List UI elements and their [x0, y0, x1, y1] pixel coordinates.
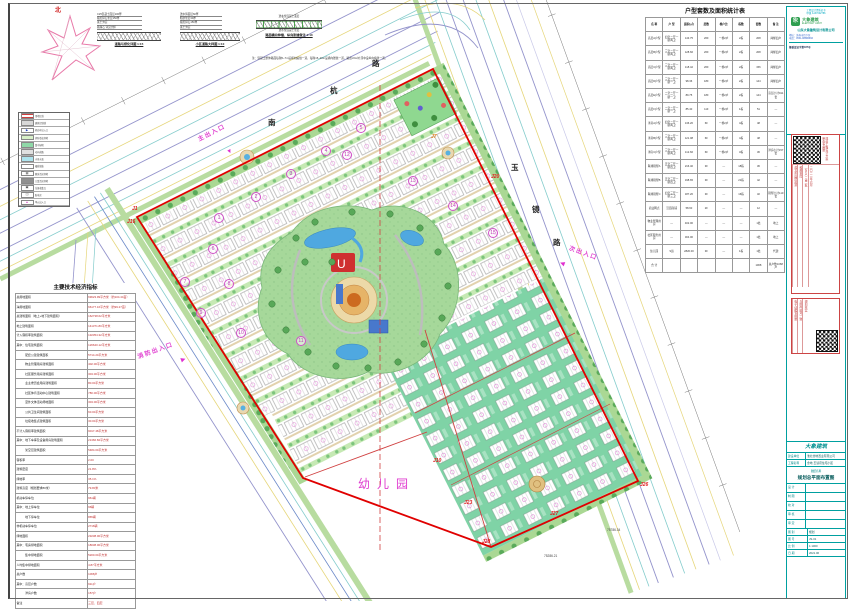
unit-cell: 总户数1068户 [767, 259, 784, 273]
unit-col-header: 面积(㎡) [680, 18, 697, 32]
field-value: 淮北金地置业有限公司 [806, 453, 836, 459]
field-value: 规划 [808, 529, 816, 535]
econ-label: 集中绿地面积 [16, 551, 88, 561]
legend-label: 宅间道路 [35, 150, 44, 154]
unit-cell: 四室二厅一厨两卫 [663, 117, 680, 131]
unit-cell: 3F [698, 174, 715, 188]
econ-label: 建筑高度（规划要求80米） [16, 484, 88, 494]
table-row: 建筑高度（规划要求80米）79.80米 [16, 484, 136, 494]
field-label: 比 例 [787, 543, 808, 549]
econ-value: 21.8% [87, 465, 135, 475]
title-block: 工程设计资质证书甲级 A137002786 象 大象建筑 ELEPHANT AR… [786, 6, 846, 599]
legend-swatch [21, 156, 34, 162]
field-value [806, 484, 808, 492]
approval-stamp: 建设工程设计方案审查专用章 淮北市自然资源和规划局〔2021〕第二批二〇二一年六… [791, 134, 840, 294]
legend-swatch: ▶ [21, 128, 34, 134]
table-row: 社区体育活动中心建筑面积780.00平方米 [16, 388, 136, 398]
econ-label: 架空层建筑面积 [16, 446, 88, 456]
unit-cell: 42 [750, 174, 767, 188]
legend-label: 水景水面 [35, 157, 44, 161]
unit-cell: 一梯2户 [715, 60, 732, 74]
econ-value: 23238.00平方米 [87, 532, 135, 542]
econ-label: 机动车停车位 [16, 493, 88, 503]
econ-value: 21366.82平方米 [87, 436, 135, 446]
field-value [806, 493, 808, 501]
unit-cell: 高层D户型 [646, 74, 663, 88]
unit-col-header: 栋数 [732, 18, 749, 32]
legend-item: ▶机动车出入口 [19, 127, 69, 134]
unit-cell: 4栋 [732, 131, 749, 145]
unit-cell: — [767, 174, 784, 188]
drawing-name: 规划总平面布置图 [788, 475, 844, 481]
legend-item: 水景水面 [19, 156, 69, 163]
field-label: 审 定 [787, 520, 806, 528]
unit-cell: 16栋 [732, 188, 749, 202]
unit-cell: 48 [750, 131, 767, 145]
table-row: 社区服务用房建筑面积304.00平方米 [16, 369, 136, 379]
unit-cell: 三室二厅一厨两卫 [663, 145, 680, 159]
unit-cell: 洋房C户型 [646, 145, 663, 159]
unit-cell [663, 259, 680, 273]
unit-cell: — [732, 230, 749, 244]
unit-cell: 208 [750, 32, 767, 46]
unit-cell: 208 [750, 46, 767, 60]
table-row: 公共卫生间建筑面积60.00平方米 [16, 408, 136, 418]
econ-label: 容积率 [16, 455, 88, 465]
unit-cell: 高层小计911套 [767, 88, 784, 102]
unit-cell: 洋房A户型 [646, 117, 663, 131]
econ-value: 141371.80平方米 [87, 322, 135, 332]
legend-item: 宅间道路 [19, 149, 69, 156]
table-row: 合 计1068总户数1068户 [646, 259, 785, 273]
cert-line: 甲级 A137002786 [789, 12, 843, 15]
legend-item: ◫配电房 [19, 192, 69, 199]
hatch-strip [97, 32, 161, 41]
econ-value: 4.87平方米 [87, 560, 135, 570]
field-value: JS-01 [808, 536, 817, 542]
table-row: 联排别墅B五室三厅一厨四卫198.653F—21栋42— [646, 174, 785, 188]
table-row: 总户数1068户 [16, 570, 136, 580]
econ-value: 865辆 [87, 513, 135, 523]
unit-statistics-table: 户型套数及面积统计表 名 称户 型面积(㎡)层数梯户比栋数套数备 注高层A户型四… [645, 6, 785, 273]
unit-cell [680, 259, 697, 273]
qr-code [793, 136, 821, 164]
econ-value: 5484.00平方米 [87, 446, 135, 456]
legend-swatch [21, 113, 34, 119]
legend-label: 机动车出入口 [35, 128, 48, 132]
table-row: 不计入容积率建筑面积9017.48平方米 [16, 427, 136, 437]
unit-cell: 143.75 [680, 32, 697, 46]
table-row: 洋房A户型四室二厅一厨两卫136.206F一梯2户4栋48— [646, 117, 785, 131]
drawing-meta-row: 日 期2021.06 [787, 550, 845, 557]
unit-cell: 85.40 [680, 103, 697, 117]
econ-label: 其中：地上停车位 [16, 503, 88, 513]
unit-cell: 4栋 [732, 117, 749, 131]
unit-cell: — [715, 188, 732, 202]
unit-cell: 11F [698, 103, 715, 117]
unit-cell: 216.40 [680, 159, 697, 173]
unit-cell: 代建 [767, 245, 784, 259]
signature-row: 校 对 [787, 502, 845, 511]
table-row: 业主委员会用房建筑面积80.00平方米 [16, 379, 136, 389]
table-row: 洋房C户型三室二厅一厨两卫112.666F一梯2户3栋36洋房小计157套 [646, 145, 785, 159]
stamp-text: 规划核实 [802, 299, 807, 353]
field-value: 金地·玉镜府住宅小区 [806, 460, 834, 466]
table-row: 高层A户型四室二厅一厨两卫143.7526F一梯2户2栋208两梯四户 [646, 32, 785, 46]
table-row: 高层D户型三室二厅一厨一卫98.3618F一梯2户2栋144两梯四户 [646, 74, 785, 88]
detail-caption: 路面横向伸缩、纵向胀缝做法 1:10 [256, 34, 322, 38]
table-row: 其中：住宅建筑面积126640.12平方米 [16, 341, 136, 351]
econ-label: 物业管理用房建筑面积 [16, 360, 88, 370]
legend-swatch [21, 120, 34, 126]
unit-col-header: 名 称 [646, 18, 663, 32]
table-row: 备注三层、四层 [16, 599, 136, 609]
unit-cell: 89.75 [680, 88, 697, 102]
table-row: 其中：宅旁绿地面积18038.00平方米 [16, 541, 136, 551]
econ-value: 132354.32平方米 [87, 331, 135, 341]
unit-col-header: 层数 [698, 18, 715, 32]
unit-cell [698, 259, 715, 273]
field-label: 设 计 [787, 484, 806, 492]
unit-cell [715, 259, 732, 273]
unit-cell: 144 [750, 88, 767, 102]
table-row: 社区服务用房—304.00———1处地上 [646, 230, 785, 244]
econ-label: 其中：住宅建筑面积 [16, 341, 88, 351]
unit-cell: 高层B户型 [646, 46, 663, 60]
unit-col-header: 梯户比 [715, 18, 732, 32]
unit-cell: 2栋 [732, 46, 749, 60]
legend-label: 配电房 [35, 193, 42, 197]
legend-swatch: ▦ [21, 171, 34, 177]
stamp-text: 二〇二一年六月 [808, 165, 813, 287]
table-row: 建筑密度21.8% [16, 465, 136, 475]
field-value: 1:1000 [808, 543, 819, 549]
unit-cell: 32 [750, 188, 767, 202]
unit-cell: — [715, 216, 732, 230]
unit-cell: 高层C户型 [646, 60, 663, 74]
legend-label: 用地红线 [35, 114, 44, 118]
field-value [806, 502, 808, 510]
contact-line: 电话：0531-88886666 [789, 37, 843, 40]
signature-row: 设 计 [787, 484, 845, 493]
unit-cell: 高层A户型 [646, 32, 663, 46]
unit-cell: 121.08 [680, 131, 697, 145]
unit-cell: 三室二厅一厨两卫 [663, 46, 680, 60]
table-row: 垃圾收集点建筑面积30.00平方米 [16, 417, 136, 427]
unit-cell: — [715, 202, 732, 216]
unit-cell: 联排别墅A [646, 159, 663, 173]
unit-cell: 五室三厅一厨四卫 [663, 174, 680, 188]
signature-row: 审 核 [787, 511, 845, 520]
table-row: 机动车停车位961辆 [16, 493, 136, 503]
table-row: 洋房B户型三室二厅一厨两卫121.086F一梯2户4栋48— [646, 131, 785, 145]
svg-text:U: U [337, 257, 346, 271]
unit-cell: — [732, 202, 749, 216]
unit-cell: 两梯四户 [767, 74, 784, 88]
unit-cell: 26F [698, 60, 715, 74]
legend-swatch [21, 178, 34, 184]
econ-label: 垃圾收集点建筑面积 [16, 417, 88, 427]
unit-cell: 联排别墅B [646, 174, 663, 188]
table-row: 计入容积率建筑面积132354.32平方米 [16, 331, 136, 341]
legend: 用地红线建筑控制线▶机动车出入口消防登高场地集中绿地宅间道路水景水面硬质铺装▦健… [18, 112, 70, 207]
table-row: 高层C户型三室二厅一厨两卫118.4226F一梯2户2栋156两梯四户 [646, 60, 785, 74]
cert-lines: 工程设计资质证书甲级 A137002786 [789, 9, 843, 15]
legend-swatch [21, 135, 34, 141]
econ-label: 业主委员会用房建筑面积 [16, 379, 88, 389]
unit-cell: 一梯2户 [715, 131, 732, 145]
unit-col-header: 户 型 [663, 18, 680, 32]
unit-cell: 198.65 [680, 174, 697, 188]
legend-label: 单元出入口 [35, 200, 46, 204]
unit-cell: — [767, 202, 784, 216]
econ-value: 2.00 [87, 455, 135, 465]
company-brand: 大象建筑 ELEPHANT ARCH [802, 18, 822, 26]
econ-value: 66177.16平方米（约99.27亩） [87, 303, 135, 313]
unit-cell: 高层E户型 [646, 88, 663, 102]
unit-cell: — [715, 245, 732, 259]
unit-cell: 2820.00 [680, 245, 697, 259]
hatch-strip-green [256, 20, 322, 29]
company-name: 山东大象建筑设计有限公司 [789, 27, 843, 32]
econ-label: 建筑密度 [16, 465, 88, 475]
leader-label: 透水性混凝土垫层 [256, 29, 322, 32]
unit-cell: 402.00 [680, 216, 697, 230]
drawing-name-cell: 图纸名称 规划总平面布置图 [787, 467, 845, 484]
econ-label: 绿地面积 [16, 532, 88, 542]
project-field: 工程名称金地·玉镜府住宅小区 [787, 460, 845, 467]
unit-cell: 一梯2户 [715, 88, 732, 102]
unit-cell: 二室二厅一厨一卫 [663, 103, 680, 117]
unit-cell: 112.66 [680, 145, 697, 159]
unit-cell: — [663, 230, 680, 244]
detail-caption: 道路与绿化详图 1:15 [97, 43, 161, 47]
unit-cell: — [767, 159, 784, 173]
unit-cell: 洋房B户型 [646, 131, 663, 145]
unit-cell: — [767, 131, 784, 145]
legend-label: 健身活动场地 [35, 172, 48, 176]
legend-item: 消防登高场地 [19, 135, 69, 142]
unit-cell: 洋房小计157套 [767, 145, 784, 159]
unit-cell: — [767, 117, 784, 131]
unit-cell: 98.36 [680, 74, 697, 88]
company-contact: 地址：济南市历下区电话：0531-88886666 [789, 34, 843, 40]
unit-cell: 9班 [663, 245, 680, 259]
table-row: 绿地面积23238.00平方米 [16, 532, 136, 542]
unit-cell: 128.66 [680, 46, 697, 60]
leader-label: 路缘石 详见大样 [97, 26, 142, 30]
economic-indicators-table: 主要技术经济指标 总用地面积69623.99平方米（约104.44亩）净用地面积… [15, 283, 136, 609]
field-label: 图 号 [787, 536, 808, 542]
hatch-strip [180, 32, 240, 41]
title-block-company: 工程设计资质证书甲级 A137002786 象 大象建筑 ELEPHANT AR… [787, 7, 845, 135]
unit-cell: 四室二厅一厨两卫 [663, 32, 680, 46]
unit-cell: — [698, 216, 715, 230]
legend-swatch: ▣ [21, 185, 34, 191]
unit-cell: 地上 [767, 230, 784, 244]
unit-cell: — [732, 216, 749, 230]
unit-cell: — [715, 174, 732, 188]
unit-cell: 18F [698, 74, 715, 88]
unit-cell: 1068 [750, 259, 767, 273]
econ-label: 总户数 [16, 570, 88, 580]
table-row: 配套公建建筑面积5714.20平方米 [16, 350, 136, 360]
leader-label: 透水性混凝土面层 [256, 15, 322, 18]
unit-cell: 1处 [750, 230, 767, 244]
econ-label: 洋房户数 [16, 589, 88, 599]
econ-value: 三层、四层 [87, 599, 135, 609]
title-block-fields: 大象建筑 建设单位淮北金地置业有限公司工程名称金地·玉镜府住宅小区 图纸名称 规… [787, 441, 845, 598]
unit-cell: 一梯2户 [715, 32, 732, 46]
legend-swatch: ◫ [21, 192, 34, 198]
table-row: 容积率2.00 [16, 455, 136, 465]
road-junction-curves [385, 3, 485, 48]
table-row: 幼儿园9班2820.003F—1栋1处代建 [646, 245, 785, 259]
unit-cell: 物业管理用房 [646, 216, 663, 230]
unit-cell: 156 [750, 60, 767, 74]
unit-cell: 21栋 [732, 174, 749, 188]
econ-value: 126640.12平方米 [87, 341, 135, 351]
unit-cell: 36 [750, 145, 767, 159]
table-row: 高层E户型二室二厅一厨一卫89.7518F一梯2户2栋144高层小计911套 [646, 88, 785, 102]
table-row: 非机动车停车位2716辆 [16, 522, 136, 532]
table-row: 高层F户型二室二厅一厨一卫85.4011F一梯2户1栋51— [646, 103, 785, 117]
legend-label: 建筑控制线 [35, 121, 46, 125]
legend-swatch: ▲ [21, 200, 34, 206]
legend-label: 集中绿地 [35, 143, 44, 147]
econ-table-title: 主要技术经济指标 [15, 283, 136, 291]
unit-cell: 48 [750, 117, 767, 131]
brand-sub: ELEPHANT ARCH [802, 23, 822, 26]
econ-label: 绿地率 [16, 474, 88, 484]
unit-cell: 18栋 [732, 159, 749, 173]
econ-label: 其中：宅旁绿地面积 [16, 541, 88, 551]
legend-label: 硬质铺装 [35, 164, 44, 168]
site-plan-sheet: { "colors":{"boundary":"#e00000","entran… [0, 0, 850, 601]
table-row: 其中：高层户数911户 [16, 579, 136, 589]
drawing-meta-row: 图 号JS-01 [787, 536, 845, 543]
table-row: 净用地面积66177.16平方米（约99.27亩） [16, 303, 136, 313]
legend-item: ▦健身活动场地 [19, 171, 69, 178]
table-row: 联排别墅A五室三厅一厨四卫216.403F—18栋36— [646, 159, 785, 173]
company-logo-icon: 象 [791, 17, 800, 26]
econ-value: 9017.48平方米 [87, 427, 135, 437]
econ-value: 162738.62平方米 [87, 312, 135, 322]
leader-label: 素土夯实 [180, 26, 222, 30]
econ-value: 1068户 [87, 570, 135, 580]
unit-cell: 社区服务用房 [646, 230, 663, 244]
table-row: 其中：地上停车位96辆 [16, 503, 136, 513]
blue-pool [336, 284, 343, 304]
unit-cell [732, 259, 749, 273]
econ-value: 304.00平方米 [87, 398, 135, 408]
unit-cell: 商业网点 [646, 202, 663, 216]
econ-label: 净用地面积 [16, 303, 88, 313]
econ-label: 人均集中绿地面积 [16, 560, 88, 570]
econ-value: 18038.00平方米 [87, 541, 135, 551]
table-row: 人均集中绿地面积4.87平方米 [16, 560, 136, 570]
field-label: 制 图 [787, 493, 806, 501]
field-label: 日 期 [787, 550, 808, 556]
unit-cell: 36 [750, 159, 767, 173]
project-field: 建设单位淮北金地置业有限公司 [787, 453, 845, 460]
econ-value: 80.00平方米 [87, 379, 135, 389]
econ-value: 5200.00平方米 [87, 551, 135, 561]
unit-cell: 一梯2户 [715, 117, 732, 131]
unit-cell: 6F [698, 117, 715, 131]
unit-cell: 2栋 [732, 32, 749, 46]
table-row: 室外文体活动场地面积304.00平方米 [16, 398, 136, 408]
unit-cell: 58.60 [680, 202, 697, 216]
unit-cell: 1处 [750, 245, 767, 259]
econ-value: 911户 [87, 579, 135, 589]
legend-label: 消防登高场地 [35, 136, 48, 140]
legend-item: 儿童活动场地 [19, 178, 69, 185]
econ-label: 总建筑面积（地上+地下建筑面积） [16, 312, 88, 322]
unit-col-header: 套数 [750, 18, 767, 32]
unit-cell: 两梯四户 [767, 46, 784, 60]
unit-cell: 一梯2户 [715, 46, 732, 60]
econ-value: 69623.99平方米（约104.44亩） [87, 293, 135, 303]
unit-cell: 1处 [750, 216, 767, 230]
legend-swatch [21, 164, 34, 170]
unit-cell: 四室三厅一厨三卫 [663, 188, 680, 202]
econ-value: 402.00平方米 [87, 360, 135, 370]
field-label: 校 对 [787, 502, 806, 510]
field-label: 建设单位 [787, 453, 806, 459]
legend-item: 硬质铺装 [19, 163, 69, 170]
table-row: 商业网点沿街商铺58.602F——12— [646, 202, 785, 216]
unit-cell: 高层F户型 [646, 103, 663, 117]
unit-cell: 1栋 [732, 103, 749, 117]
unit-cell: — [715, 159, 732, 173]
unit-cell: 136.20 [680, 117, 697, 131]
unit-cell: 3F [698, 188, 715, 202]
econ-value: 30.00平方米 [87, 417, 135, 427]
econ-label: 配套公建建筑面积 [16, 350, 88, 360]
unit-cell: 1栋 [732, 245, 749, 259]
econ-label: 其中：高层户数 [16, 579, 88, 589]
unit-cell: 三室二厅一厨两卫 [663, 131, 680, 145]
unit-cell: 一梯2户 [715, 74, 732, 88]
econ-value: 96辆 [87, 503, 135, 513]
drawing-meta-row: 比 例1:1000 [787, 543, 845, 550]
econ-value: 961辆 [87, 493, 135, 503]
unit-cell: 三室二厅一厨两卫 [663, 60, 680, 74]
unit-cell: 2栋 [732, 74, 749, 88]
brand-bottom: 大象建筑 [787, 442, 845, 453]
unit-cell: 12 [750, 202, 767, 216]
table-row: 地下停车位865辆 [16, 513, 136, 523]
unit-cell: 6F [698, 145, 715, 159]
table-row: 物业管理用房—402.00———1处地上 [646, 216, 785, 230]
unit-cell: 26F [698, 46, 715, 60]
econ-value: 2716辆 [87, 522, 135, 532]
stamp-title: 建设工程设计方案审查专用章 [821, 136, 828, 163]
table-row: 物业管理用房建筑面积402.00平方米 [16, 360, 136, 370]
unit-cell: 3F [698, 159, 715, 173]
legend-item: ▣垃圾收集点 [19, 185, 69, 192]
table-row: 绿地率35.1% [16, 474, 136, 484]
table-row: 高层B户型三室二厅一厨两卫128.6626F一梯2户2栋208两梯四户 [646, 46, 785, 60]
field-value [806, 511, 808, 519]
unit-cell: 2栋 [732, 88, 749, 102]
drawing-name-label: 图纸名称 [788, 469, 844, 473]
unit-cell: 26F [698, 32, 715, 46]
legend-swatch [21, 149, 34, 155]
econ-label: 非机动车停车位 [16, 522, 88, 532]
unit-cell: 一梯2户 [715, 145, 732, 159]
